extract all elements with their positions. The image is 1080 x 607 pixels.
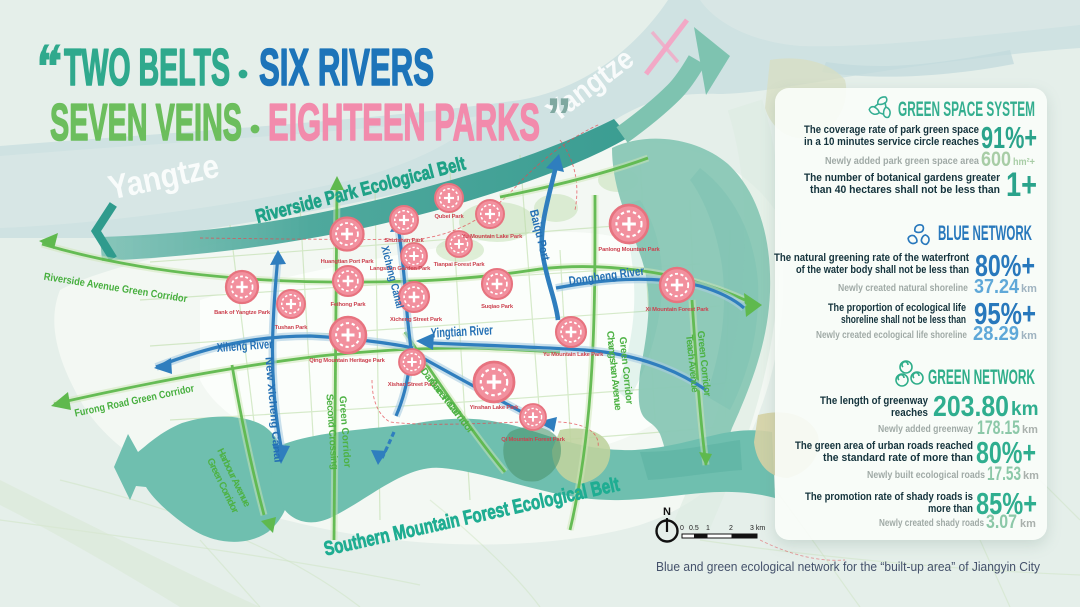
svg-text:km: km	[1020, 518, 1036, 530]
svg-text:Newly added park green space a: Newly added park green space area	[825, 155, 979, 167]
svg-text:The coverage rate of park gree: The coverage rate of park green space	[804, 124, 979, 136]
svg-text:km: km	[1023, 470, 1039, 482]
svg-text:The proportion of ecological l: The proportion of ecological life	[828, 302, 966, 314]
svg-text:km: km	[1011, 399, 1038, 420]
svg-text:Newly added greenway: Newly added greenway	[878, 423, 973, 435]
svg-text:SIX RIVERS: SIX RIVERS	[259, 39, 434, 97]
svg-text:Newly created natural shorelin: Newly created natural shoreline	[838, 282, 968, 294]
svg-text:28.29: 28.29	[973, 323, 1019, 345]
svg-text:EIGHTEEN PARKS: EIGHTEEN PARKS	[268, 94, 540, 152]
svg-text:shoreline shall not be less th: shoreline shall not be less than	[841, 314, 966, 326]
svg-text:km: km	[1021, 330, 1037, 342]
svg-text:3.07: 3.07	[986, 512, 1017, 533]
svg-text:1+: 1+	[1006, 166, 1037, 204]
svg-text:SEVEN VEINS: SEVEN VEINS	[50, 94, 242, 152]
svg-text:The natural greening rate of t: The natural greening rate of the waterfr…	[774, 252, 969, 264]
svg-text:Newly created ecological life: Newly created ecological life shoreline	[816, 329, 967, 341]
svg-text:of the water body shall not be: of the water body shall not be less than	[796, 264, 969, 276]
svg-text:Blue and green ecological netw: Blue and green ecological network for th…	[656, 560, 1041, 574]
svg-text:The number of botanical garden: The number of botanical gardens greater	[804, 172, 1001, 184]
svg-text:”: ”	[546, 88, 572, 146]
svg-text:Newly built ecological roads: Newly built ecological roads	[867, 469, 985, 481]
svg-text:“: “	[36, 40, 60, 98]
svg-text:The length of greenway: The length of greenway	[820, 395, 929, 407]
svg-text:GREEN NETWORK: GREEN NETWORK	[928, 366, 1035, 389]
svg-text:the standard rate of more than: the standard rate of more than	[823, 452, 973, 464]
svg-text:TWO BELTS: TWO BELTS	[64, 39, 230, 97]
svg-text:Newly created shady roads: Newly created shady roads	[879, 517, 984, 529]
svg-text:more than: more than	[928, 503, 973, 515]
svg-text:BLUE NETWORK: BLUE NETWORK	[938, 222, 1032, 245]
svg-text:17.53: 17.53	[987, 464, 1021, 485]
svg-text:in a 10 minutes service circle: in a 10 minutes service circle reaches	[804, 136, 979, 148]
svg-text:37.24: 37.24	[974, 276, 1020, 298]
svg-text:reaches: reaches	[891, 407, 928, 419]
svg-text:The promotion rate of shady ro: The promotion rate of shady roads is	[805, 491, 973, 503]
svg-text:The green area of urban roads: The green area of urban roads reached	[795, 440, 973, 452]
svg-text:GREEN SPACE SYSTEM: GREEN SPACE SYSTEM	[898, 98, 1035, 121]
svg-text:km: km	[1021, 283, 1037, 295]
svg-text:than 40 hectares shall not be: than 40 hectares shall not be less than	[810, 184, 1000, 196]
